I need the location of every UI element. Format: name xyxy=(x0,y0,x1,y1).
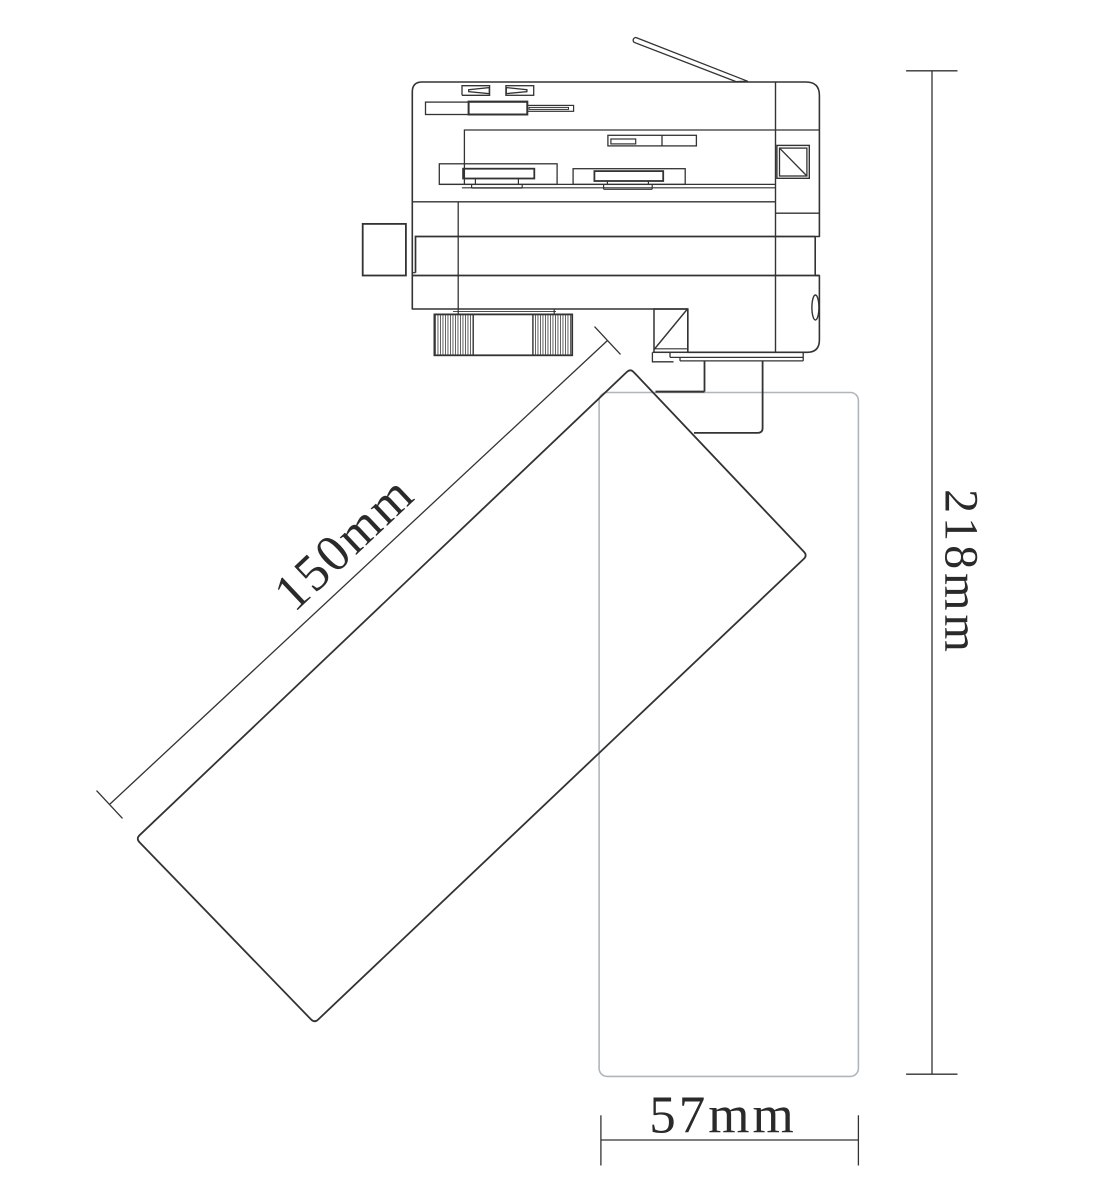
svg-text:218mm: 218mm xyxy=(935,489,988,656)
svg-text:57mm: 57mm xyxy=(649,1087,796,1145)
